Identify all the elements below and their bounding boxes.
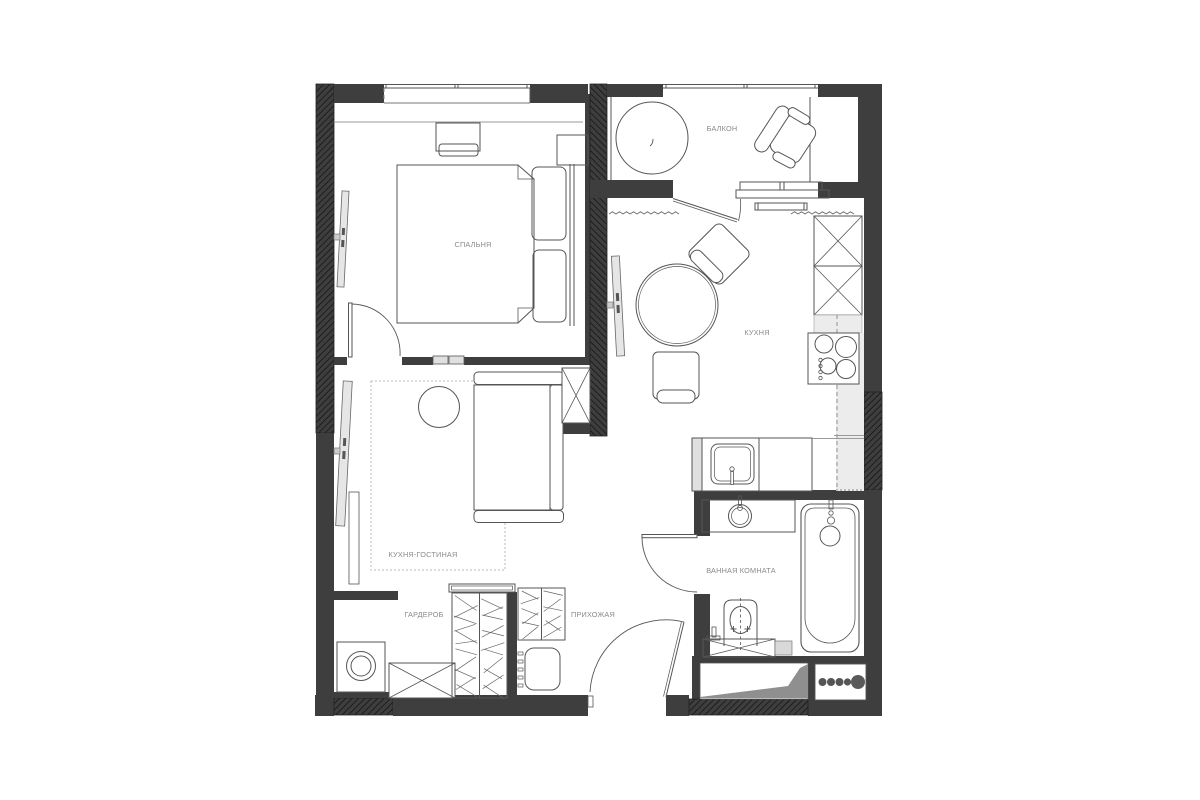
svg-text:СПАЛЬНЯ: СПАЛЬНЯ <box>454 240 491 249</box>
svg-text:КУХНЯ: КУХНЯ <box>744 328 769 337</box>
svg-text:КУХНЯ-ГОСТИНАЯ: КУХНЯ-ГОСТИНАЯ <box>389 550 458 559</box>
svg-text:ВАННАЯ КОМНАТА: ВАННАЯ КОМНАТА <box>706 566 776 575</box>
svg-text:БАЛКОН: БАЛКОН <box>707 124 738 133</box>
svg-text:ПРИХОЖАЯ: ПРИХОЖАЯ <box>571 610 615 619</box>
svg-text:ГАРДЕРОБ: ГАРДЕРОБ <box>404 610 443 619</box>
